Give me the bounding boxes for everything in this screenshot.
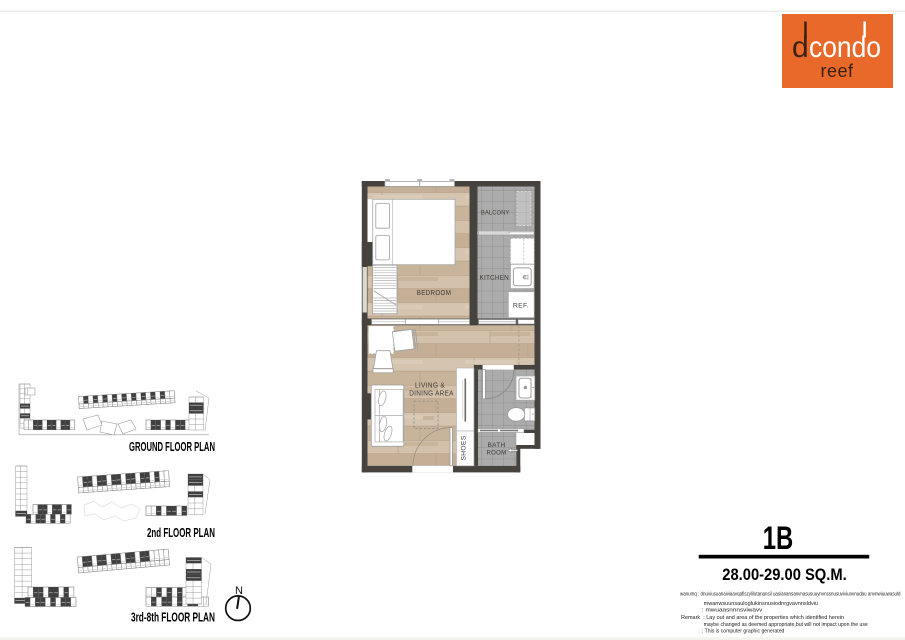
svg-text:mwanwsuunsauloglukinsnusiodnrg: mwanwsuunsauloglukinsnusiodnrgvavnnsldvi… — [704, 601, 819, 607]
svg-text:GROUND FLOOR PLAN: GROUND FLOOR PLAN — [129, 439, 215, 454]
svg-text:BALCONY: BALCONY — [481, 210, 510, 217]
svg-text:REF.: REF. — [513, 303, 529, 310]
svg-text:reef: reef — [820, 61, 854, 81]
svg-text:SHOES: SHOES — [461, 436, 468, 461]
svg-text:N: N — [235, 585, 243, 597]
svg-text:Remark : Lay out and area of: Remark : Lay out and area of the propert… — [681, 615, 844, 621]
svg-text:1B: 1B — [763, 520, 794, 556]
svg-text:wanumq : dnuviusuanaiviaavqafi: wanumq : dnuviusuanaiviaavqafiszylilutan… — [679, 592, 900, 598]
svg-text:2nd FLOOR PLAN: 2nd FLOOR PLAN — [147, 525, 215, 540]
svg-text:KITCHEN: KITCHEN — [480, 274, 510, 281]
svg-text:ROOM: ROOM — [487, 449, 507, 456]
svg-text:maybe changed as deemed approp: maybe changed as deemed appropriate,but … — [704, 622, 868, 628]
svg-text:3rd-8th FLOOR PLAN: 3rd-8th FLOOR PLAN — [131, 610, 215, 625]
svg-text:: mwuaasnnnsviwavv: : mwuaasnnnsviwavv — [702, 608, 763, 614]
svg-text:condo: condo — [809, 31, 881, 64]
svg-text:DINING AREA: DINING AREA — [409, 388, 454, 397]
svg-text:BATH: BATH — [488, 442, 506, 449]
svg-text:BEDROOM: BEDROOM — [417, 288, 452, 297]
svg-text:: This is computer graphic gen: : This is computer graphic generated — [702, 629, 785, 635]
svg-text:28.00-29.00 SQ.M.: 28.00-29.00 SQ.M. — [722, 565, 846, 584]
